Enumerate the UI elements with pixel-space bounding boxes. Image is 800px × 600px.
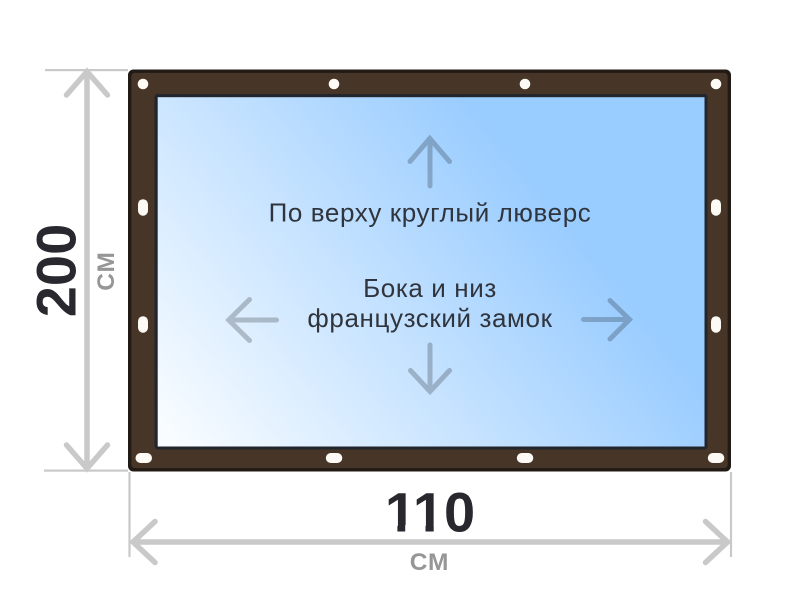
svg-text:СМ: СМ xyxy=(93,251,120,290)
svg-text:СМ: СМ xyxy=(410,549,449,576)
svg-text:По верху круглый люверс: По верху круглый люверс xyxy=(269,198,592,228)
svg-text:200: 200 xyxy=(25,224,88,317)
svg-text:Бока и низ: Бока и низ xyxy=(363,273,497,303)
svg-text:110: 110 xyxy=(385,481,475,544)
svg-text:французский замок: французский замок xyxy=(307,303,552,333)
